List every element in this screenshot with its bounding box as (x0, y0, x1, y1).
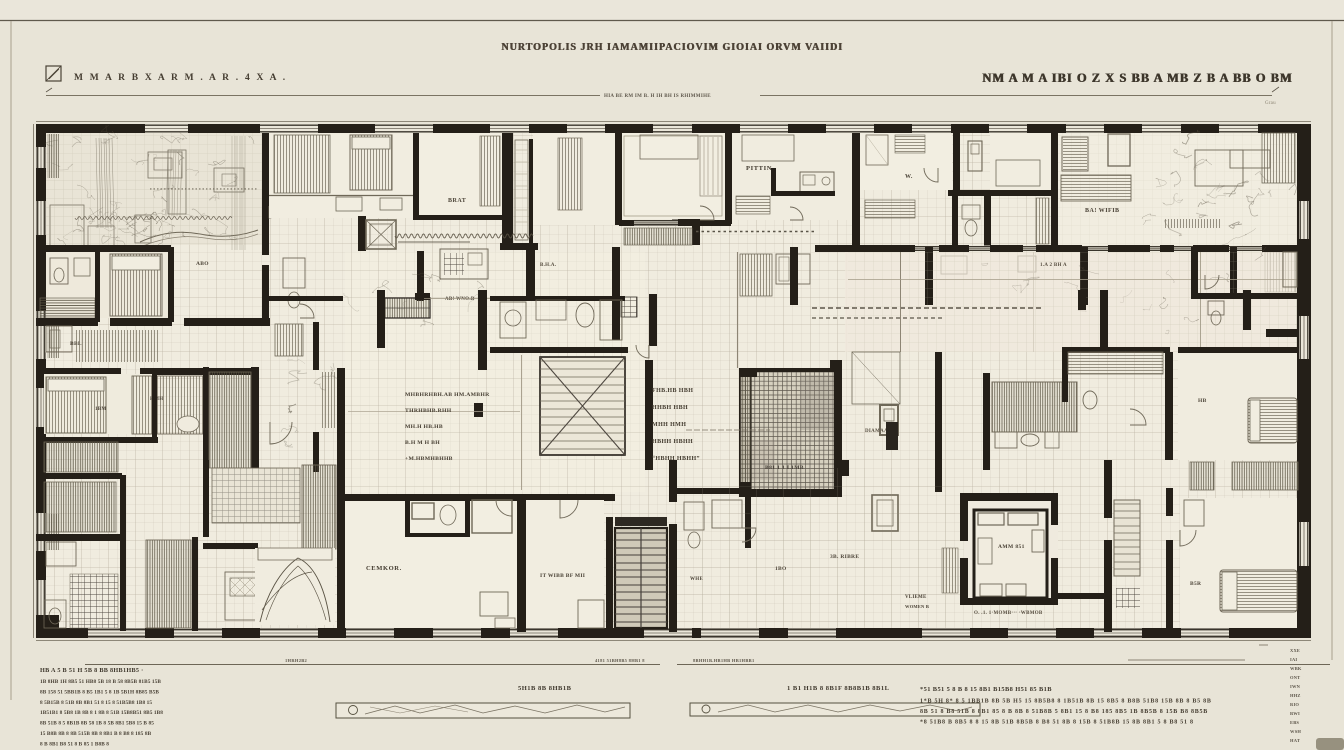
svg-text:8 5B15B 8 51B 8B 8B1 51 8 15 8: 8 5B15B 8 51B 8B 8B1 51 8 15 8 51B5B8 1B… (40, 700, 152, 706)
svg-text:W.: W. (905, 174, 913, 180)
svg-text:AB! WNO.B: AB! WNO.B (445, 297, 475, 302)
svg-text:WSH: WSH (1290, 729, 1301, 734)
svg-text:M M A R B X A R M . A R . 4 X: M M A R B X A R M . A R . 4 X A . (74, 73, 287, 83)
svg-text:5H1B 8B 8HB1B: 5H1B 8B 8HB1B (518, 685, 572, 692)
svg-text:IWN: IWN (1290, 684, 1301, 689)
svg-text:EBS: EBS (1290, 720, 1299, 725)
svg-text:8B 51 8 B8 51B 8 8B1 85 8 B 8B: 8B 51 8 B8 51B 8 8B1 85 8 B 8B 8 51B8B 5… (920, 709, 1208, 715)
svg-text:HAT: HAT (1290, 738, 1300, 743)
svg-text:B.H M H BH: B.H M H BH (405, 440, 440, 446)
svg-text:MHBHRHBH.AB HM.AMBHR: MHBHRHBH.AB HM.AMBHR (405, 392, 490, 398)
svg-text:ABO: ABO (196, 261, 209, 267)
svg-text:1HRH2B2: 1HRH2B2 (285, 658, 308, 663)
svg-text:*8 51B8 B 8B5 8 8 15 8B 51B 8B: *8 51B8 B 8B5 8 8 15 8B 51B 8B5B 8 B8 51… (920, 720, 1194, 726)
svg-text:BRAT: BRAT (448, 198, 466, 204)
svg-text:8B 158 51 5BB1B 8 B5 1B1 5 8 1: 8B 158 51 5BB1B 8 B5 1B1 5 8 1B 5B1H 8B8… (40, 689, 159, 695)
svg-text:MH.H HB.HB: MH.H HB.HB (405, 424, 443, 430)
svg-text:MHH HMH: MHH HMH (652, 422, 686, 428)
svg-text:Grau: Grau (1265, 101, 1276, 106)
svg-text:*51 B51 5 8 B 8 15 8B1 B15B8 H: *51 B51 5 8 B 8 15 8B1 B15B8 H51 85 B1B (920, 686, 1052, 693)
svg-text:FHB.HB HBH: FHB.HB HBH (652, 388, 693, 394)
svg-text:IT WIBB BF MII: IT WIBB BF MII (540, 573, 585, 579)
svg-text:PITTIN: PITTIN (746, 165, 772, 172)
svg-text:B5R: B5R (1190, 581, 1202, 587)
svg-text:AMM 851: AMM 851 (998, 544, 1025, 550)
svg-text:1BM: 1BM (95, 407, 106, 412)
svg-text:HBHH HBHH: HBHH HBHH (652, 439, 693, 445)
svg-text:+M.HBMHBHHB: +M.HBMHBHHB (405, 456, 453, 462)
svg-text:15 B8B 8B 8 8B 515B 8B 8 8B1 B: 15 B8B 8B 8 8B 515B 8B 8 8B1 B 8 B8 8 18… (40, 731, 152, 737)
svg-text:4181 51BH8B5 8HB1 8: 4181 51BH8B5 8HB1 8 (595, 658, 645, 663)
svg-text:RIO: RIO (1290, 702, 1299, 707)
svg-text:8 B 8B1 B8 51 8 B 85 1 B8B 8: 8 B 8B1 B8 51 8 B 85 1 B8B 8 (40, 741, 109, 747)
svg-text:NURTOPOLIS JRH IAMAMIIPACIOVIM: NURTOPOLIS JRH IAMAMIIPACIOVIM GIOIAI OR… (502, 42, 844, 53)
svg-text:NM A M A IBI O Z X S BB A MB: NM A M A IBI O Z X S BB A MB Z B A BB O … (983, 71, 1293, 85)
svg-text:THRHBHB.RHH: THRHBHB.RHH (405, 408, 452, 414)
svg-text:BA! WIFIB: BA! WIFIB (1085, 208, 1120, 214)
svg-text:RWI: RWI (1290, 711, 1300, 716)
svg-text:XXE: XXE (1290, 648, 1300, 653)
svg-text:1 B1 H1B 8 8B1F 8B8B1B 8B1L: 1 B1 H1B 8 8B1F 8B8B1B 8B1L (787, 685, 890, 692)
svg-text:HHZ: HHZ (1290, 693, 1301, 698)
svg-text:8BHH1B.HB1HB HB1HBB1: 8BHH1B.HB1HB HB1HBB1 (693, 658, 755, 663)
svg-text:8B 51B 8 5 8B1B 8B 58 1B 8 5B: 8B 51B 8 5 8B1B 8B 58 1B 8 5B 8B1 5B8 15… (40, 721, 154, 727)
svg-text:CEMKOR.: CEMKOR. (366, 565, 402, 572)
svg-text:IAI: IAI (1290, 657, 1297, 662)
svg-text:1*B 5H 8* 8 5 1BB1B 8B 5B H5 1: 1*B 5H 8* 8 5 1BB1B 8B 5B H5 15 8B5B8 8 … (920, 699, 1212, 705)
svg-text:HB: HB (1198, 398, 1207, 404)
svg-text:O. .1. 1·MOMB··· ·WBMOB: O. .1. 1·MOMB··· ·WBMOB (974, 611, 1043, 616)
svg-text:HIA BE RM IM B. H IH BH IS RHI: HIA BE RM IM B. H IH BH IS RHIMMIHE (604, 94, 711, 99)
svg-text:1B51B1 8 5B8 1B 8B 8 1 8B 8 51: 1B51B1 8 5B8 1B 8B 8 1 8B 8 51B 15B8B51 … (40, 710, 163, 716)
svg-text:HHBH HBH: HHBH HBH (652, 405, 688, 411)
svg-text:HB A 5 B 51 H 5B 8 BB 8HB1HB5: HB A 5 B 51 H 5B 8 BB 8HB1HB5 · (40, 667, 144, 674)
svg-text:B.H.A.: B.H.A. (540, 263, 557, 268)
svg-text:“HBHH HBHH”: “HBHH HBHH” (652, 456, 700, 462)
svg-text:1B 8HB 1H 8B5 51 HB8 5B 18 B 5: 1B 8HB 1H 8B5 51 HB8 5B 18 B 58 8B5B 81B… (40, 679, 161, 685)
svg-text:ONT: ONT (1290, 675, 1300, 680)
svg-text:DIAMAA: DIAMAA (865, 429, 888, 434)
svg-text:WBK: WBK (1290, 666, 1302, 671)
